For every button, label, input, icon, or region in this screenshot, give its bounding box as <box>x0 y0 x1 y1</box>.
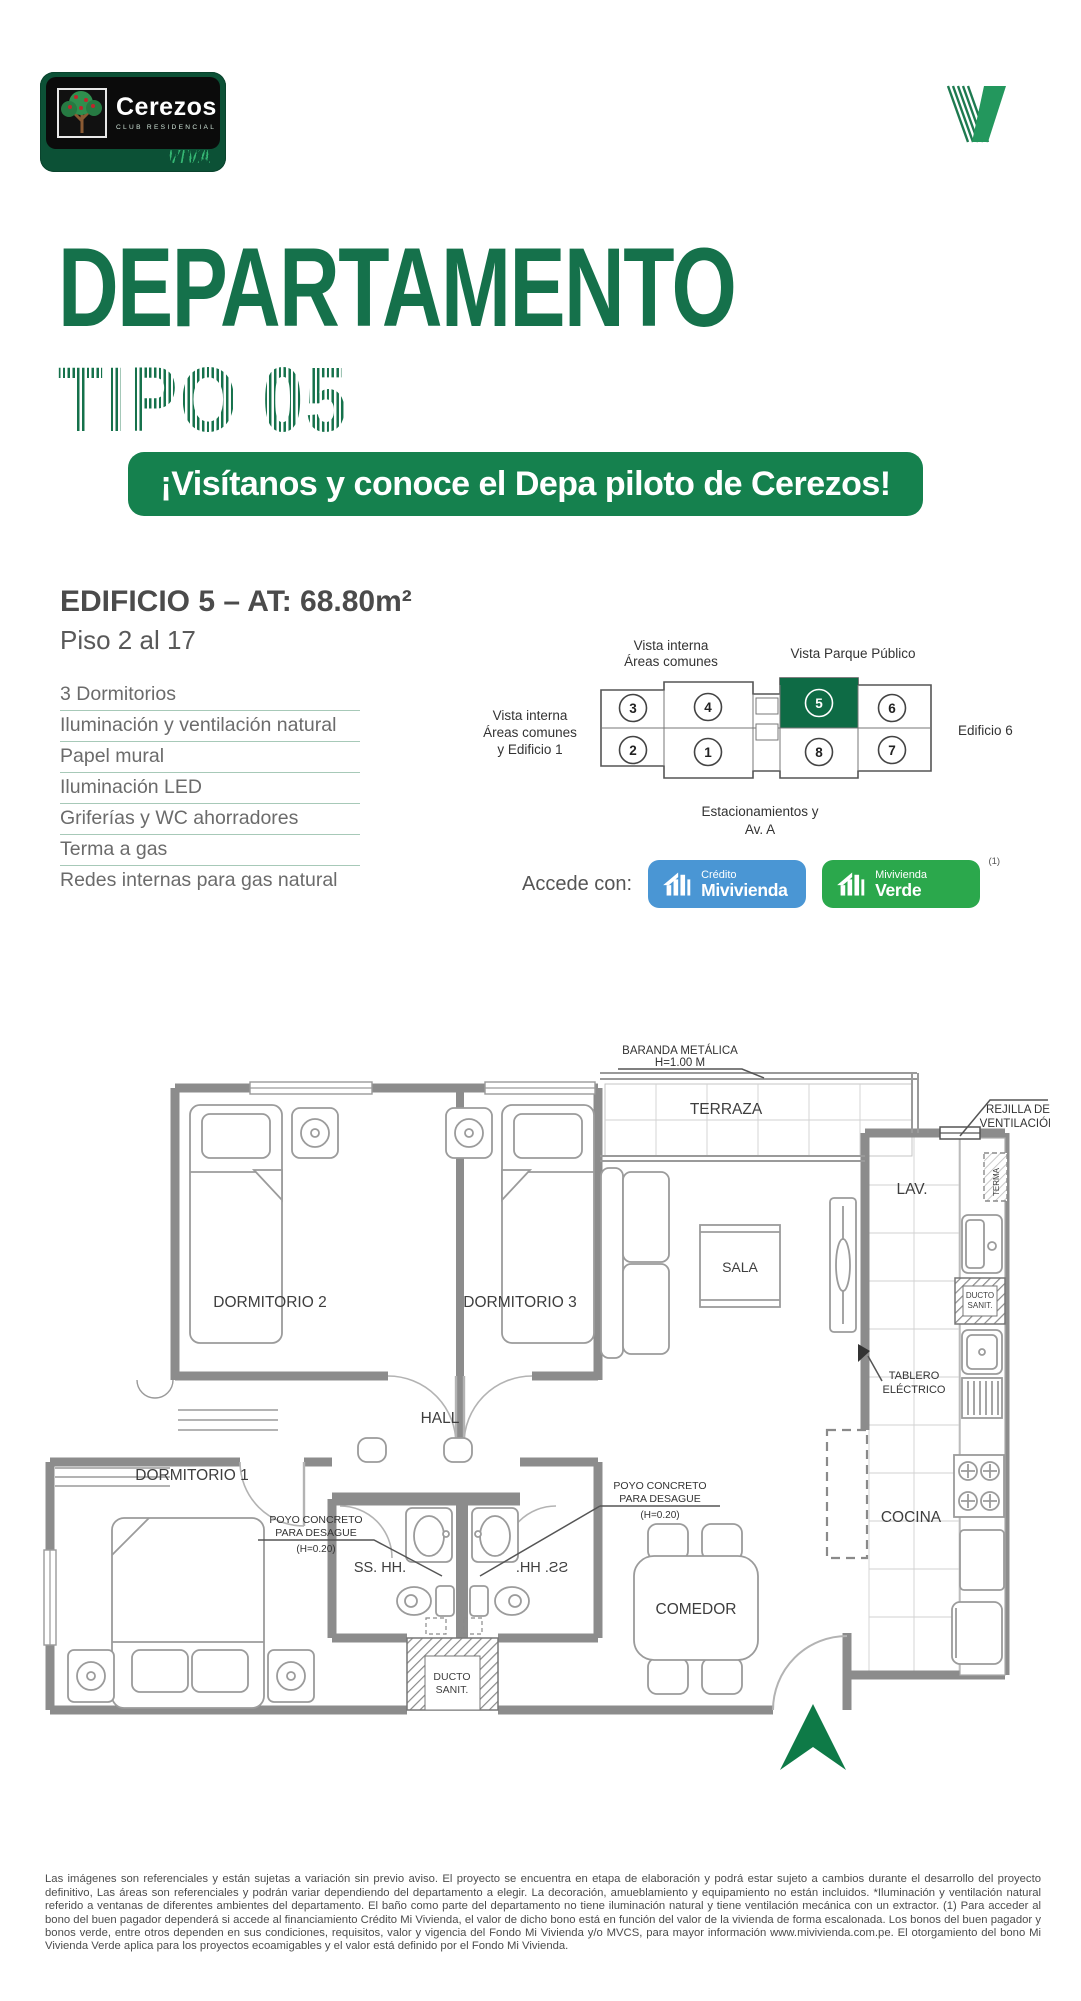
room-label-terraza: TERRAZA <box>690 1101 763 1118</box>
room-label-comedor: COMEDOR <box>656 1601 737 1618</box>
unit-circle-2: 2 <box>629 743 637 758</box>
label-duct-right: DUCTO <box>966 1291 994 1300</box>
label-terma: TERMA <box>992 1167 1001 1196</box>
unit-circle-4: 4 <box>704 700 712 715</box>
viva-wordmark: VIVA <box>167 147 212 168</box>
label-rejilla: REJILLA DE <box>986 1104 1050 1116</box>
svg-text:Áreas comunes: Áreas comunes <box>483 725 577 740</box>
feature-item: Griferías y WC ahorradores <box>60 804 360 835</box>
svg-text:(H=0.20): (H=0.20) <box>640 1510 679 1521</box>
flyer-page: Cerezos CLUB RESIDENCIAL VIVA DEPARTAMEN… <box>0 0 1081 2001</box>
footnote-marker: (1) <box>988 856 1000 867</box>
promo-banner: ¡Visítanos y conoce el Depa piloto de Ce… <box>128 452 923 516</box>
room-label-lavanderia: LAV. <box>896 1181 927 1198</box>
badge-line2: Mivivienda <box>701 881 787 899</box>
svg-text:Av. A: Av. A <box>745 822 775 837</box>
room-label-bath-left: SS. HH. <box>354 1560 406 1576</box>
feature-list: 3 Dormitorios Iluminación y ventilación … <box>60 680 360 896</box>
room-label-bath-right-mirrored: SS. HH. <box>516 1560 568 1576</box>
keyplan-label-top-right: Vista Parque Público <box>790 646 915 661</box>
label-poyo-left: POYO CONCRETO <box>269 1514 362 1526</box>
floor-plan: DORMITORIO 2 DORMITORIO 3 DORMITORIO 1 H… <box>40 1010 1050 1800</box>
room-label-dormitorio-1: DORMITORIO 1 <box>135 1467 248 1484</box>
svg-text:ELÉCTRICO: ELÉCTRICO <box>883 1383 946 1396</box>
access-label: Accede con: <box>522 873 632 896</box>
svg-text:y Edificio 1: y Edificio 1 <box>497 742 562 757</box>
unit-circle-6: 6 <box>888 701 896 716</box>
feature-item: Terma a gas <box>60 835 360 866</box>
unit-circle-5: 5 <box>815 696 823 711</box>
label-baranda: BARANDA METÁLICA <box>622 1044 738 1057</box>
cherry-tree-icon <box>56 85 108 141</box>
access-row: Accede con: Crédito Mivivienda <box>522 860 980 908</box>
floor-range: Piso 2 al 17 <box>60 625 196 656</box>
feature-item: Redes internas para gas natural <box>60 866 360 896</box>
keyplan-label-top-left: Vista interna <box>634 638 709 653</box>
legal-text: Las imágenes son referenciales y están s… <box>45 1873 1041 1953</box>
svg-text:PARA DESAGUE: PARA DESAGUE <box>619 1493 701 1505</box>
page-subtitle: TIPO 05 <box>58 354 781 446</box>
badge-line2: Verde <box>875 881 927 899</box>
feature-item: Iluminación y ventilación natural <box>60 711 360 742</box>
brand-logo-panel: Cerezos CLUB RESIDENCIAL <box>46 77 220 149</box>
svg-text:SANIT.: SANIT. <box>436 1684 469 1696</box>
page-title-block: DEPARTAMENTO TIPO 05 <box>58 232 961 446</box>
room-label-dormitorio-2: DORMITORIO 2 <box>213 1294 326 1311</box>
svg-text:Áreas comunes: Áreas comunes <box>624 654 718 669</box>
room-label-hall: HALL <box>421 1410 460 1427</box>
credito-mivivienda-badge: Crédito Mivivienda <box>648 860 806 908</box>
fridge-space <box>827 1430 867 1558</box>
svg-text:VENTILACIÓN: VENTILACIÓN <box>980 1117 1050 1130</box>
house-icon <box>836 870 866 898</box>
keyplan-label-right: Edificio 6 <box>958 723 1013 738</box>
mivivienda-verde-badge: Mivivienda Verde (1) <box>822 860 980 908</box>
unit-circle-8: 8 <box>815 745 823 760</box>
brand-logo: Cerezos CLUB RESIDENCIAL VIVA <box>40 72 226 172</box>
label-poyo-right: POYO CONCRETO <box>613 1480 706 1492</box>
viva-v-logo-icon <box>940 80 1012 148</box>
page-title: DEPARTAMENTO <box>58 232 735 344</box>
svg-text:PARA DESAGUE: PARA DESAGUE <box>275 1527 357 1539</box>
unit-circle-7: 7 <box>888 743 896 758</box>
building-heading: EDIFICIO 5 – AT: 68.80m² <box>60 585 412 619</box>
house-icon <box>662 870 692 898</box>
key-plan: 3 4 5 6 2 1 8 7 Vista interna Áreas comu… <box>468 628 1048 868</box>
unit-circle-3: 3 <box>629 701 637 716</box>
feature-item: Iluminación LED <box>60 773 360 804</box>
brand-name: Cerezos <box>116 95 217 120</box>
keyplan-label-bottom: Estacionamientos y <box>701 804 818 819</box>
room-label-sala: SALA <box>722 1259 758 1275</box>
room-label-dormitorio-3: DORMITORIO 3 <box>463 1294 576 1311</box>
svg-text:H=1.00 M: H=1.00 M <box>655 1057 705 1069</box>
feature-item: 3 Dormitorios <box>60 680 360 711</box>
keyplan-label-left: Vista interna <box>493 708 568 723</box>
room-label-cocina: COCINA <box>881 1509 942 1526</box>
promo-banner-text: ¡Visítanos y conoce el Depa piloto de Ce… <box>160 465 890 504</box>
label-duct-bottom: DUCTO <box>433 1671 470 1683</box>
entrance-arrow-icon <box>780 1704 846 1770</box>
svg-text:(H=0.20): (H=0.20) <box>296 1544 335 1555</box>
svg-text:SANIT.: SANIT. <box>968 1301 993 1310</box>
brand-tagline: CLUB RESIDENCIAL <box>116 124 217 131</box>
label-tablero: TABLERO <box>889 1370 940 1382</box>
unit-circle-1: 1 <box>704 745 712 760</box>
feature-item: Papel mural <box>60 742 360 773</box>
